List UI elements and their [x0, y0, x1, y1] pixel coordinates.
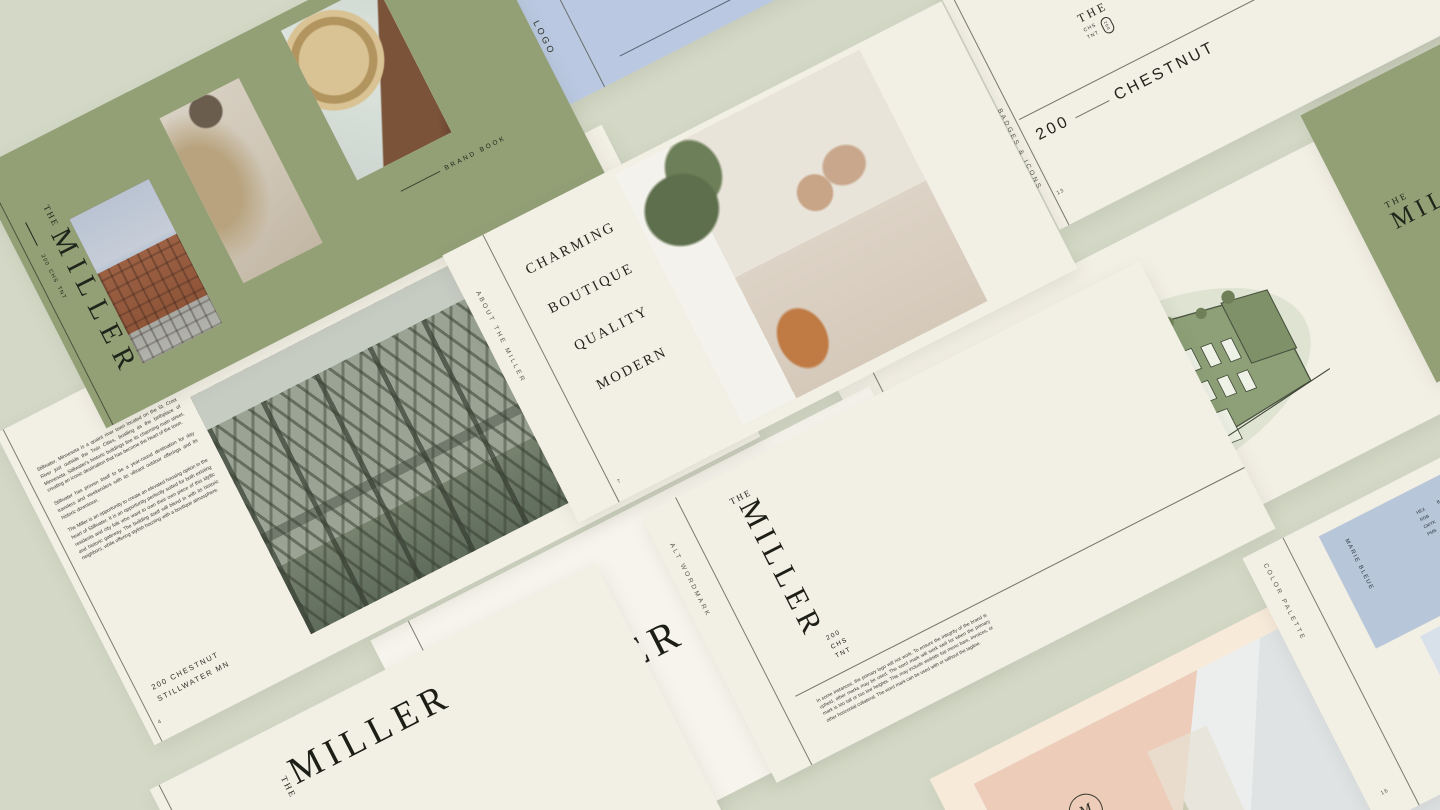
spine-rule [159, 785, 287, 810]
address-block: 200 CHESTNUT STILLWATER MN [149, 645, 233, 705]
brand-book-rule [400, 171, 440, 192]
cover-spine-dash [25, 222, 38, 246]
200-pill-badge-icon: 200 [1098, 15, 1115, 35]
primary-badge-lockup: THE CHS TNT 200 [1075, 0, 1170, 43]
monogram-letter: M [1077, 801, 1096, 810]
headline-200: 200 [1033, 113, 1073, 145]
page-number-4: 4 [157, 719, 163, 726]
headline-dash [1075, 100, 1109, 118]
cover-spine-the: THE [41, 203, 61, 228]
brand-book-text: BRAND BOOK [443, 134, 507, 171]
alt-paragraph: In some instances, the primary logo will… [816, 612, 999, 724]
hat-flatlay-photo [281, 0, 452, 180]
alt-miller: MILLER [732, 493, 833, 644]
page-number-13: 13 [1056, 188, 1066, 197]
headline-chestnut: CHESTNUT [1111, 38, 1218, 104]
cover-num: 200 [39, 254, 50, 268]
pink-envelope [974, 670, 1301, 810]
swatch-name: MARIE BLEUE [1343, 538, 1374, 591]
cover-num: CHS [47, 268, 59, 284]
partial-miller: MILLER [281, 674, 459, 794]
logo-rule [620, 0, 755, 56]
brandbook-flatlay: 200 CHS TNT LOGO BADGES & ICONS THE CHS … [0, 0, 1440, 810]
chestnut-headline: 200 CHESTNUT [1033, 0, 1301, 145]
alt-vertical-lockup: THE MILLER 200 CHS TNT [726, 479, 854, 673]
page-number-7: 7 [616, 478, 622, 485]
green-panel-lockup: THE MILLER [1382, 146, 1440, 236]
page-number-16: 16 [1380, 788, 1390, 797]
stillwater-paragraphs: Stillwater, Minnesota is a quaint river … [36, 397, 224, 563]
partial-miller-wordmark: THE MILLER [269, 674, 459, 800]
cover-num: TNT [55, 285, 67, 300]
swatch-row-labels: HEXRGB CMYKPMS [1415, 504, 1440, 539]
